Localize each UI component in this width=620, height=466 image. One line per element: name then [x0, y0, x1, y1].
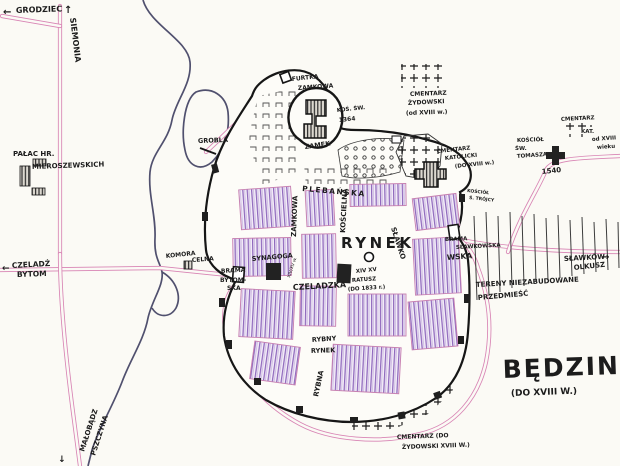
wall-tower [202, 212, 208, 221]
gate-furtka-zamkowa [280, 72, 292, 84]
wall-tower [219, 298, 225, 307]
hill-building [392, 136, 401, 143]
map-canvas: ← GRODZIEC ↑ SIEMONIA ← CZELADŹ BYTOM MA… [0, 0, 620, 466]
label-cm-zyd-top-1: CMENTARZ [410, 90, 448, 98]
wall-tower [398, 411, 406, 419]
arrow-left-icon: ← [2, 264, 10, 274]
wall-tower [458, 336, 464, 344]
city-block [413, 237, 462, 295]
market-well [365, 253, 374, 262]
city-block [408, 298, 458, 350]
wall-tower [296, 406, 303, 413]
label-grobla: GROBLA [198, 136, 228, 145]
label-rybny-rynek-2: RYNEK [311, 346, 337, 355]
label-gate-slawkowska-1: BRAMA [445, 236, 468, 243]
label-cm-kat-new-4: wieku [597, 144, 616, 151]
label-gate-bytomska-2: BYTOM- [220, 277, 247, 284]
map-title: BĘDZIN [502, 351, 620, 384]
arrow-down-icon: ↓ [58, 455, 66, 465]
wall-tower [459, 194, 465, 202]
label-gate-bytomska-1: BRAMA [221, 267, 246, 275]
castle-hill-dotted-area [338, 138, 404, 178]
label-street-zamkowa: ZAMKOWA [290, 195, 299, 237]
customs-house-building [184, 261, 192, 269]
city-block [348, 294, 406, 336]
city-block [300, 286, 337, 327]
label-palace-1: PAŁAC HR. [13, 150, 54, 158]
castle [288, 88, 342, 148]
hand-drawn-map-bedzin: ← GRODZIEC ↑ SIEMONIA ← CZELADŹ BYTOM MA… [0, 0, 620, 466]
city-block [239, 186, 294, 230]
label-street-slawkowska-outer: WSKA [447, 251, 473, 262]
palace-building [20, 166, 30, 186]
label-road-bytom: BYTOM [17, 269, 47, 279]
wall-tower [254, 378, 261, 385]
arrow-up-icon: ↑ [64, 5, 72, 16]
label-gate-bytomska-3: SKA [227, 285, 241, 292]
label-cm-kat-new-2: KAT. [581, 129, 594, 135]
label-road-grodziec: GRODZIEC [16, 4, 63, 15]
arrow-left-icon: ← [3, 7, 11, 18]
wall-tower [464, 294, 470, 303]
wall-tower [350, 417, 358, 423]
label-tomasza-1: KOŚCIÓŁ [517, 136, 545, 144]
jewish-cemetery-top-crosses [401, 64, 443, 88]
label-tomasza-2: ŚW. [515, 145, 527, 152]
palace-building [32, 188, 45, 195]
label-cm-zyd-top-3: (od XVIII w.) [406, 109, 448, 117]
city-block [331, 344, 401, 393]
wall-tower [226, 340, 232, 349]
city-block [302, 234, 337, 279]
synagogue-building [266, 263, 281, 280]
city-block [239, 289, 295, 340]
